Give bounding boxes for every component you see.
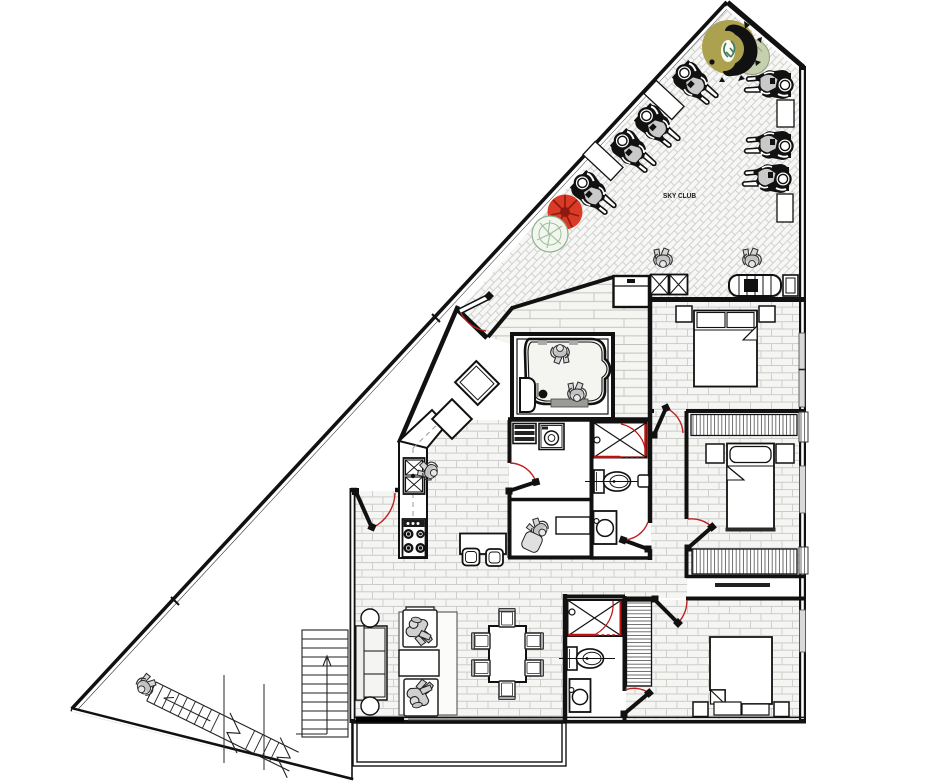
svg-text:SKY CLUB: SKY CLUB — [663, 191, 696, 200]
